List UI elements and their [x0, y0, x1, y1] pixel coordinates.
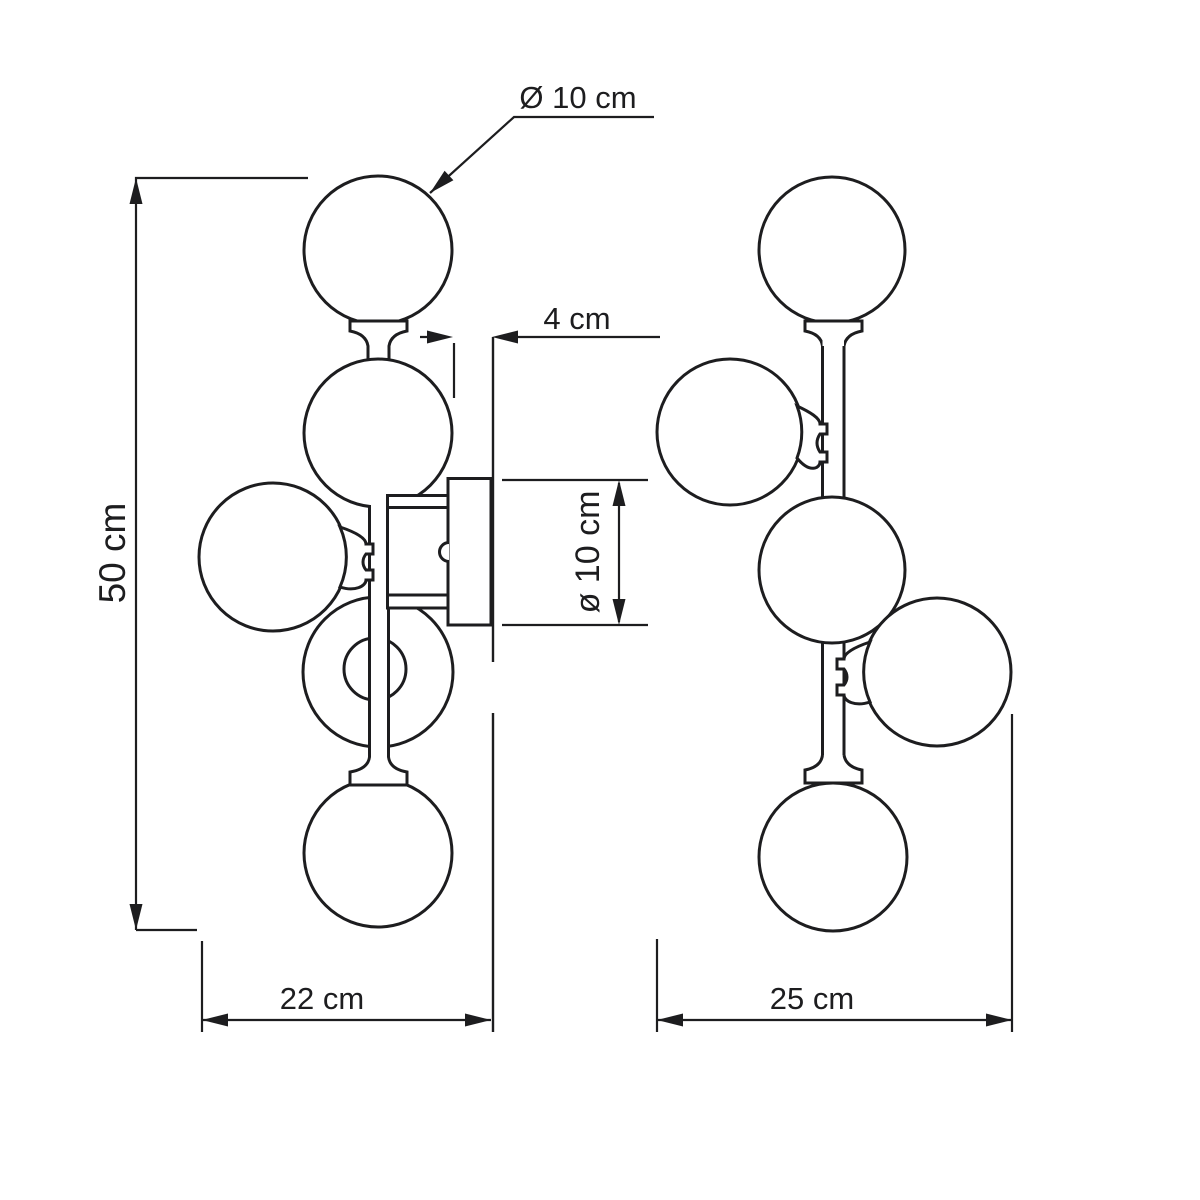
front-globe-bottom [304, 779, 452, 927]
side-globe-bottom [759, 783, 907, 931]
wall-canopy-box [448, 479, 491, 626]
lamp-drawing: Ø 10 cm 4 cm 50 cm ø 10 cm 22 cm 25 cm [0, 0, 1200, 1085]
front-globe-left [199, 483, 347, 631]
side-bottom-connector [805, 755, 862, 783]
label-total-height: 50 cm [92, 503, 133, 604]
arrow-down-icon [130, 904, 143, 930]
dim-globe-diameter [430, 117, 654, 193]
side-view [657, 177, 1011, 931]
arrow-right-icon [986, 1014, 1012, 1027]
label-side-width: 25 cm [770, 981, 854, 1016]
arrow-right-icon [427, 331, 453, 344]
canopy-screw-bump [440, 543, 450, 562]
footer: LUMINA DECO INSPIRED BY CHARM Kod produk… [0, 1080, 1200, 1200]
label-wall-box-depth: 4 cm [543, 301, 610, 336]
side-globe-right [863, 598, 1011, 746]
label-globe-diameter: Ø 10 cm [519, 80, 636, 115]
label-wall-box-diameter: ø 10 cm [569, 491, 607, 614]
front-top-connector [350, 321, 407, 361]
side-globe-left [657, 359, 803, 505]
arrow-left-icon [492, 331, 518, 344]
arrow-left-icon [657, 1014, 683, 1027]
side-globe-top [759, 177, 905, 323]
arrow-up-icon [613, 480, 626, 506]
front-view [199, 176, 493, 1032]
technical-drawing-page: Ø 10 cm 4 cm 50 cm ø 10 cm 22 cm 25 cm L… [0, 0, 1200, 1200]
dim-wall-box-depth [420, 331, 660, 399]
arrow-up-icon [130, 178, 143, 204]
front-bottom-connector [350, 755, 407, 785]
label-front-width: 22 cm [280, 981, 364, 1016]
arrow-left-icon [202, 1014, 228, 1027]
front-globe-top [304, 176, 452, 324]
arrow-down-icon [613, 599, 626, 625]
front-globe-2 [304, 359, 452, 507]
arrow-right-icon [465, 1014, 491, 1027]
